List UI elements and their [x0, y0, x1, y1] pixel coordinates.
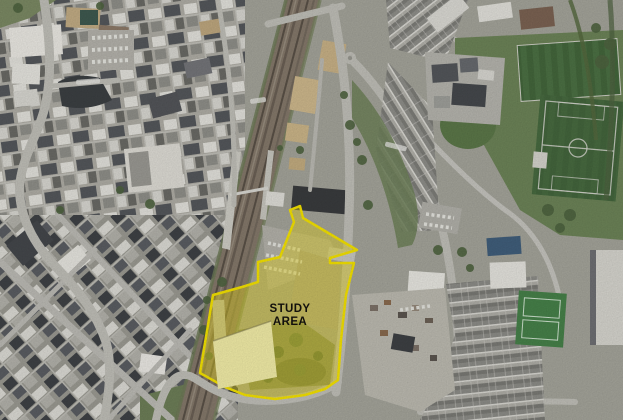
aerial-map: STUDY AREA — [0, 0, 623, 420]
photo-grain — [0, 0, 623, 420]
aerial-map-figure: STUDY AREA — [0, 0, 623, 420]
